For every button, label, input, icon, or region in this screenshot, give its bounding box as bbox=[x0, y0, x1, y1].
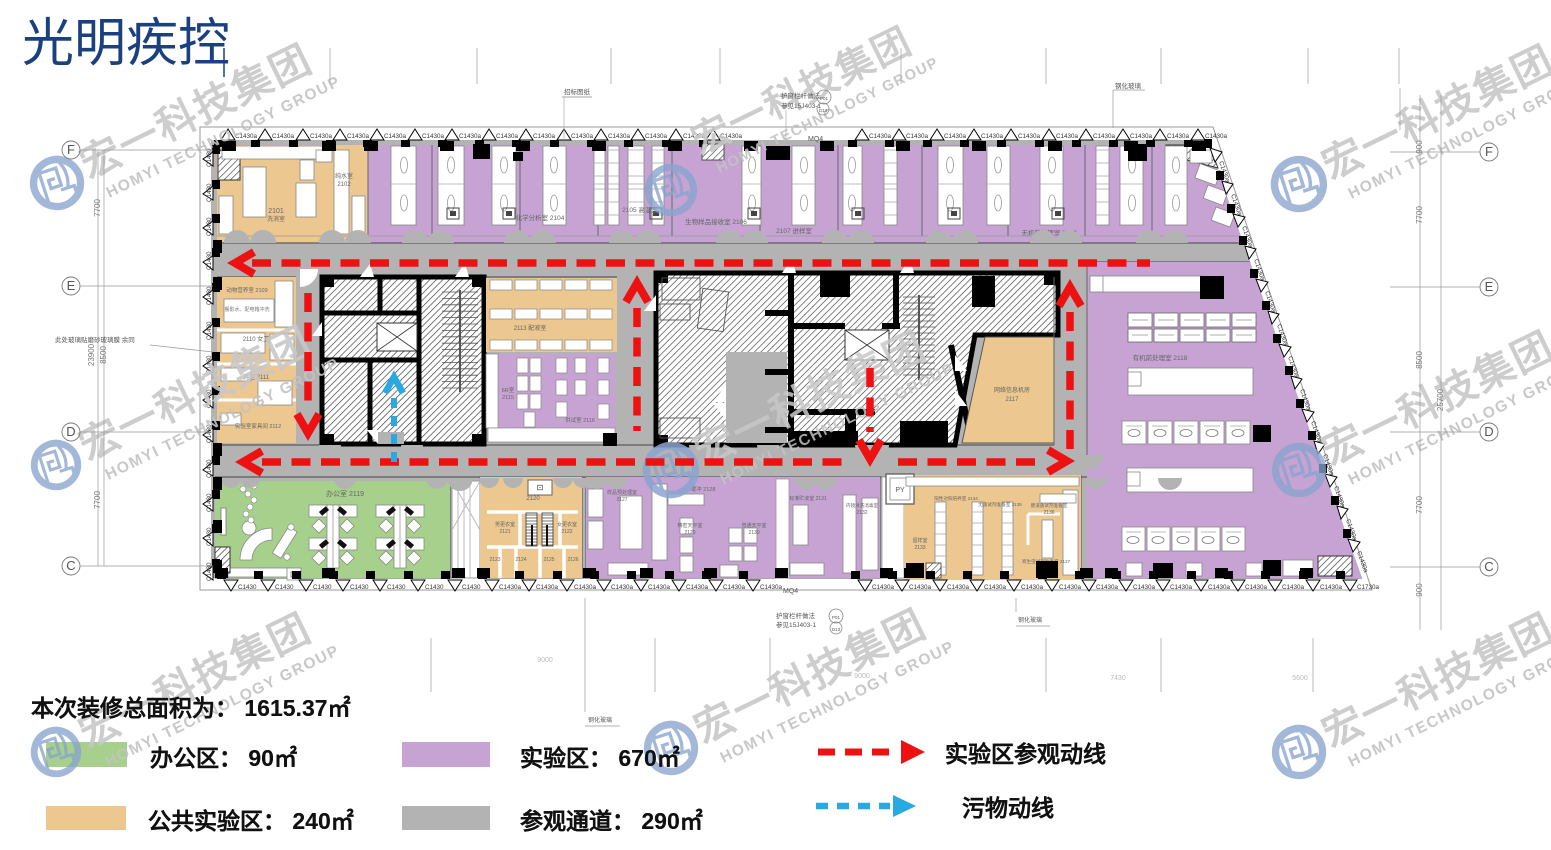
svg-text:7700: 7700 bbox=[93, 199, 102, 217]
svg-text:C1430a: C1430a bbox=[1096, 584, 1119, 591]
svg-text:实验室家具间 2112: 实验室家具间 2112 bbox=[235, 422, 281, 430]
svg-text:办公室 2119: 办公室 2119 bbox=[326, 489, 364, 498]
svg-text:2117: 2117 bbox=[1006, 397, 1020, 403]
svg-text:C1430a: C1430a bbox=[984, 584, 1007, 591]
svg-text:C1430: C1430 bbox=[462, 584, 481, 591]
svg-text:C1430a: C1430a bbox=[944, 133, 967, 140]
svg-text:P01: P01 bbox=[820, 96, 829, 101]
svg-text:2101: 2101 bbox=[268, 208, 284, 215]
svg-text:5600: 5600 bbox=[1292, 675, 1308, 682]
svg-text:2124: 2124 bbox=[515, 557, 526, 563]
svg-text:动物营养室 2109: 动物营养室 2109 bbox=[226, 286, 267, 294]
svg-text:C1430a: C1430a bbox=[1130, 133, 1153, 140]
svg-text:2120: 2120 bbox=[526, 496, 540, 502]
svg-text:2123: 2123 bbox=[489, 557, 500, 563]
svg-text:网络信息机房: 网络信息机房 bbox=[994, 386, 1030, 394]
svg-text:2125: 2125 bbox=[543, 557, 554, 563]
svg-text:C1430: C1430 bbox=[238, 584, 257, 591]
svg-text:钢化玻璃: 钢化玻璃 bbox=[1115, 81, 1142, 90]
svg-text:护窗栏杆做法: 护窗栏杆做法 bbox=[781, 91, 821, 100]
svg-text:C1430: C1430 bbox=[206, 562, 213, 581]
svg-text:E: E bbox=[67, 278, 76, 293]
svg-text:C1430a: C1430a bbox=[608, 133, 631, 140]
svg-text:C1430: C1430 bbox=[206, 493, 213, 512]
svg-text:C1430: C1430 bbox=[206, 183, 213, 202]
svg-text:2129: 2129 bbox=[684, 530, 695, 536]
svg-text:C1430a: C1430a bbox=[499, 584, 522, 591]
svg-text:C: C bbox=[1484, 559, 1493, 574]
svg-text:2122: 2122 bbox=[561, 529, 572, 535]
svg-text:C1430a: C1430a bbox=[869, 133, 892, 140]
svg-text:参观通道： 290㎡: 参观通道： 290㎡ bbox=[520, 808, 703, 834]
svg-text:C1430a: C1430a bbox=[310, 133, 333, 140]
svg-text:⊡: ⊡ bbox=[537, 483, 544, 492]
svg-text:900: 900 bbox=[1415, 583, 1424, 597]
svg-text:办公区： 90㎡: 办公区： 90㎡ bbox=[150, 745, 297, 771]
svg-text:2127: 2127 bbox=[616, 497, 627, 503]
svg-text:男更衣室: 男更衣室 bbox=[495, 521, 515, 528]
svg-text:E: E bbox=[1485, 279, 1494, 294]
svg-text:C1430a: C1430a bbox=[496, 133, 519, 140]
svg-text:C1430a: C1430a bbox=[909, 584, 932, 591]
svg-text:C1430: C1430 bbox=[206, 286, 213, 305]
svg-text:实验区： 670㎡: 实验区： 670㎡ bbox=[520, 745, 680, 771]
svg-text:女更衣室: 女更衣室 bbox=[557, 521, 577, 528]
svg-text:C1430a: C1430a bbox=[1133, 584, 1156, 591]
svg-text:C1430: C1430 bbox=[275, 584, 294, 591]
svg-text:公共实验区： 240㎡: 公共实验区： 240㎡ bbox=[148, 808, 354, 834]
svg-text:C1430a: C1430a bbox=[723, 584, 746, 591]
svg-text:C: C bbox=[66, 558, 75, 573]
svg-text:C1430: C1430 bbox=[206, 217, 213, 236]
svg-text:C1430a: C1430a bbox=[533, 133, 556, 140]
svg-text:缓冲 2128: 缓冲 2128 bbox=[691, 485, 716, 493]
svg-text:D: D bbox=[66, 424, 75, 439]
svg-text:洗消室: 洗消室 bbox=[267, 215, 285, 223]
svg-text:C1430: C1430 bbox=[206, 459, 213, 478]
svg-text:900: 900 bbox=[1415, 140, 1424, 154]
svg-text:C1430: C1430 bbox=[387, 584, 406, 591]
svg-text:无菌试剂准备室 2135: 无菌试剂准备室 2135 bbox=[978, 501, 1022, 508]
svg-text:C1430a: C1430a bbox=[1320, 584, 1343, 591]
svg-text:污物动线: 污物动线 bbox=[962, 795, 1054, 821]
svg-text:C1430a: C1430a bbox=[872, 584, 895, 591]
svg-text:钢化玻璃: 钢化玻璃 bbox=[588, 716, 612, 724]
svg-text:C1430a: C1430a bbox=[1021, 584, 1044, 591]
svg-text:C1430a: C1430a bbox=[272, 133, 295, 140]
svg-text:普通天平室: 普通天平室 bbox=[741, 522, 766, 529]
svg-text:C1430: C1430 bbox=[206, 321, 213, 340]
svg-text:F: F bbox=[1485, 144, 1493, 159]
svg-text:9000: 9000 bbox=[537, 657, 553, 664]
svg-text:7700: 7700 bbox=[1415, 206, 1424, 224]
svg-text:C1430a: C1430a bbox=[1205, 133, 1228, 140]
svg-text:护窗栏杆做法: 护窗栏杆做法 bbox=[776, 611, 816, 620]
svg-text:C1430a: C1430a bbox=[384, 133, 407, 140]
svg-text:23900: 23900 bbox=[87, 343, 96, 366]
svg-text:D: D bbox=[1484, 424, 1493, 439]
svg-text:2107 进样室: 2107 进样室 bbox=[776, 226, 812, 235]
svg-text:C1430a: C1430a bbox=[760, 584, 783, 591]
svg-text:MQ4: MQ4 bbox=[783, 588, 798, 595]
svg-text:C1430: C1430 bbox=[350, 584, 369, 591]
svg-text:C1730a: C1730a bbox=[1357, 584, 1380, 591]
svg-text:C1430a: C1430a bbox=[645, 133, 668, 140]
svg-text:C1430: C1430 bbox=[313, 584, 332, 591]
svg-text:8500: 8500 bbox=[99, 346, 108, 364]
svg-text:阳性对照培养室 2134: 阳性对照培养室 2134 bbox=[934, 495, 978, 502]
svg-text:实验区参观动线: 实验区参观动线 bbox=[945, 741, 1106, 767]
svg-text:C1430a: C1430a bbox=[947, 584, 970, 591]
svg-text:化学分析室 2104: 化学分析室 2104 bbox=[516, 213, 565, 222]
svg-text:钢化玻璃: 钢化玻璃 bbox=[1018, 616, 1042, 624]
svg-text:C1430a: C1430a bbox=[611, 584, 634, 591]
svg-text:D13: D13 bbox=[819, 108, 828, 113]
svg-text:P01: P01 bbox=[832, 615, 841, 620]
svg-text:C1430a: C1430a bbox=[347, 133, 370, 140]
svg-text:留样室: 留样室 bbox=[912, 537, 927, 544]
svg-text:C1430a: C1430a bbox=[686, 584, 709, 591]
svg-text:2136: 2136 bbox=[1043, 510, 1054, 516]
svg-text:C1430a: C1430a bbox=[459, 133, 482, 140]
svg-text:2133: 2133 bbox=[914, 545, 925, 551]
svg-text:C1430a: C1430a bbox=[1208, 584, 1231, 591]
svg-text:6R室: 6R室 bbox=[502, 386, 515, 394]
svg-text:供试室 2116: 供试室 2116 bbox=[565, 416, 595, 424]
svg-text:参见15J403-1: 参见15J403-1 bbox=[776, 620, 816, 629]
svg-text:内镜清洗消毒室: 内镜清洗消毒室 bbox=[846, 502, 879, 509]
svg-text:C1430a: C1430a bbox=[1018, 133, 1041, 140]
svg-text:25700: 25700 bbox=[1436, 388, 1445, 411]
svg-text:光明疾控: 光明疾控 bbox=[22, 15, 230, 73]
svg-text:此处玻璃贴磨砂玻璃膜 余同: 此处玻璃贴磨砂玻璃膜 余同 bbox=[55, 335, 135, 344]
svg-text:C1430: C1430 bbox=[206, 527, 213, 546]
svg-text:C1430a: C1430a bbox=[1282, 584, 1305, 591]
svg-text:C1430a: C1430a bbox=[1170, 584, 1193, 591]
svg-text:2132: 2132 bbox=[856, 510, 867, 516]
svg-text:F: F bbox=[67, 142, 75, 157]
svg-text:C1430: C1430 bbox=[425, 584, 444, 591]
svg-text:C1430a: C1430a bbox=[1059, 584, 1082, 591]
svg-text:PY: PY bbox=[895, 487, 905, 494]
svg-text:餐影水、配电箱冲洗: 餐影水、配电箱冲洗 bbox=[224, 306, 269, 313]
svg-text:2121: 2121 bbox=[499, 529, 510, 535]
svg-text:招标图纸: 招标图纸 bbox=[564, 87, 591, 96]
svg-text:C1430a: C1430a bbox=[422, 133, 445, 140]
svg-text:2102: 2102 bbox=[337, 182, 351, 188]
svg-text:样品预处理室: 样品预处理室 bbox=[607, 489, 637, 496]
svg-text:2115: 2115 bbox=[502, 395, 514, 401]
svg-text:8500: 8500 bbox=[1415, 351, 1424, 369]
svg-text:标准贮液室 2131: 标准贮液室 2131 bbox=[789, 495, 827, 502]
svg-text:C1430a: C1430a bbox=[1093, 133, 1116, 140]
svg-text:C1430a: C1430a bbox=[981, 133, 1004, 140]
svg-text:2130: 2130 bbox=[748, 530, 759, 536]
svg-text:C1430a: C1430a bbox=[571, 133, 594, 140]
svg-text:7700: 7700 bbox=[93, 491, 102, 509]
svg-text:本次装修总面积为： 1615.37㎡: 本次装修总面积为： 1615.37㎡ bbox=[31, 695, 351, 721]
svg-text:C1430a: C1430a bbox=[1167, 133, 1190, 140]
svg-text:7700: 7700 bbox=[1415, 496, 1424, 514]
svg-text:生物样品接收室 2106: 生物样品接收室 2106 bbox=[685, 217, 747, 226]
svg-text:C1430a: C1430a bbox=[1056, 133, 1079, 140]
svg-text:C1430a: C1430a bbox=[906, 133, 929, 140]
svg-text:有机前处理室 2118: 有机前处理室 2118 bbox=[1133, 353, 1188, 362]
svg-text:C1430a: C1430a bbox=[648, 584, 671, 591]
svg-text:参见15J403-1: 参见15J403-1 bbox=[781, 101, 821, 110]
svg-text:2113 配液室: 2113 配液室 bbox=[514, 324, 547, 332]
svg-text:肠道菌试剂准备室: 肠道菌试剂准备室 bbox=[1031, 502, 1068, 509]
svg-text:2126: 2126 bbox=[567, 557, 578, 563]
svg-text:C1430: C1430 bbox=[206, 251, 213, 270]
svg-text:7430: 7430 bbox=[1110, 675, 1126, 682]
svg-text:C1430a: C1430a bbox=[574, 584, 597, 591]
svg-text:MQ4: MQ4 bbox=[808, 136, 823, 143]
svg-text:C1430a: C1430a bbox=[536, 584, 559, 591]
svg-text:精密天平室: 精密天平室 bbox=[677, 522, 702, 529]
svg-text:C1430a: C1430a bbox=[1245, 584, 1268, 591]
svg-text:D13: D13 bbox=[832, 627, 841, 632]
svg-text:纯水室: 纯水室 bbox=[335, 172, 353, 180]
